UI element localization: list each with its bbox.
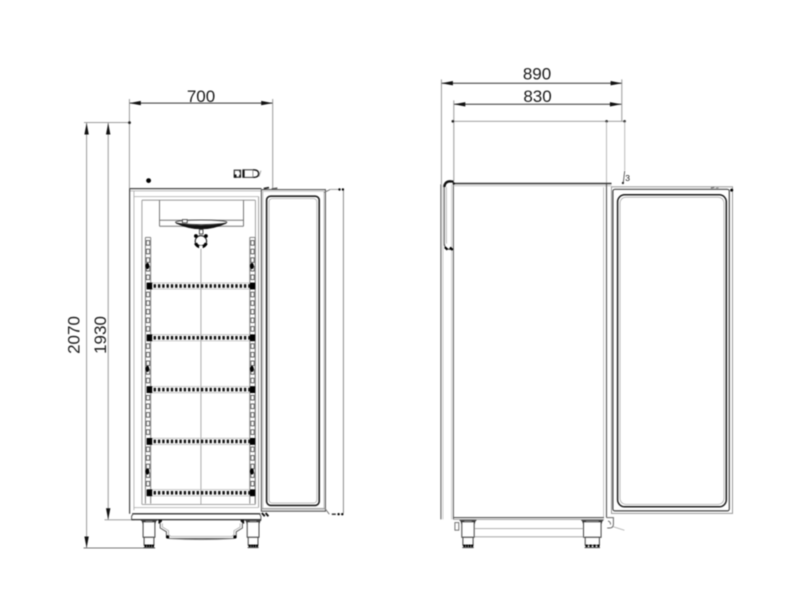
svg-text:700: 700 bbox=[187, 87, 215, 106]
svg-text:890: 890 bbox=[523, 64, 551, 83]
svg-text:3: 3 bbox=[625, 173, 630, 183]
svg-text:2070: 2070 bbox=[65, 316, 84, 354]
svg-text:830: 830 bbox=[523, 87, 551, 106]
svg-text:1930: 1930 bbox=[91, 316, 110, 354]
